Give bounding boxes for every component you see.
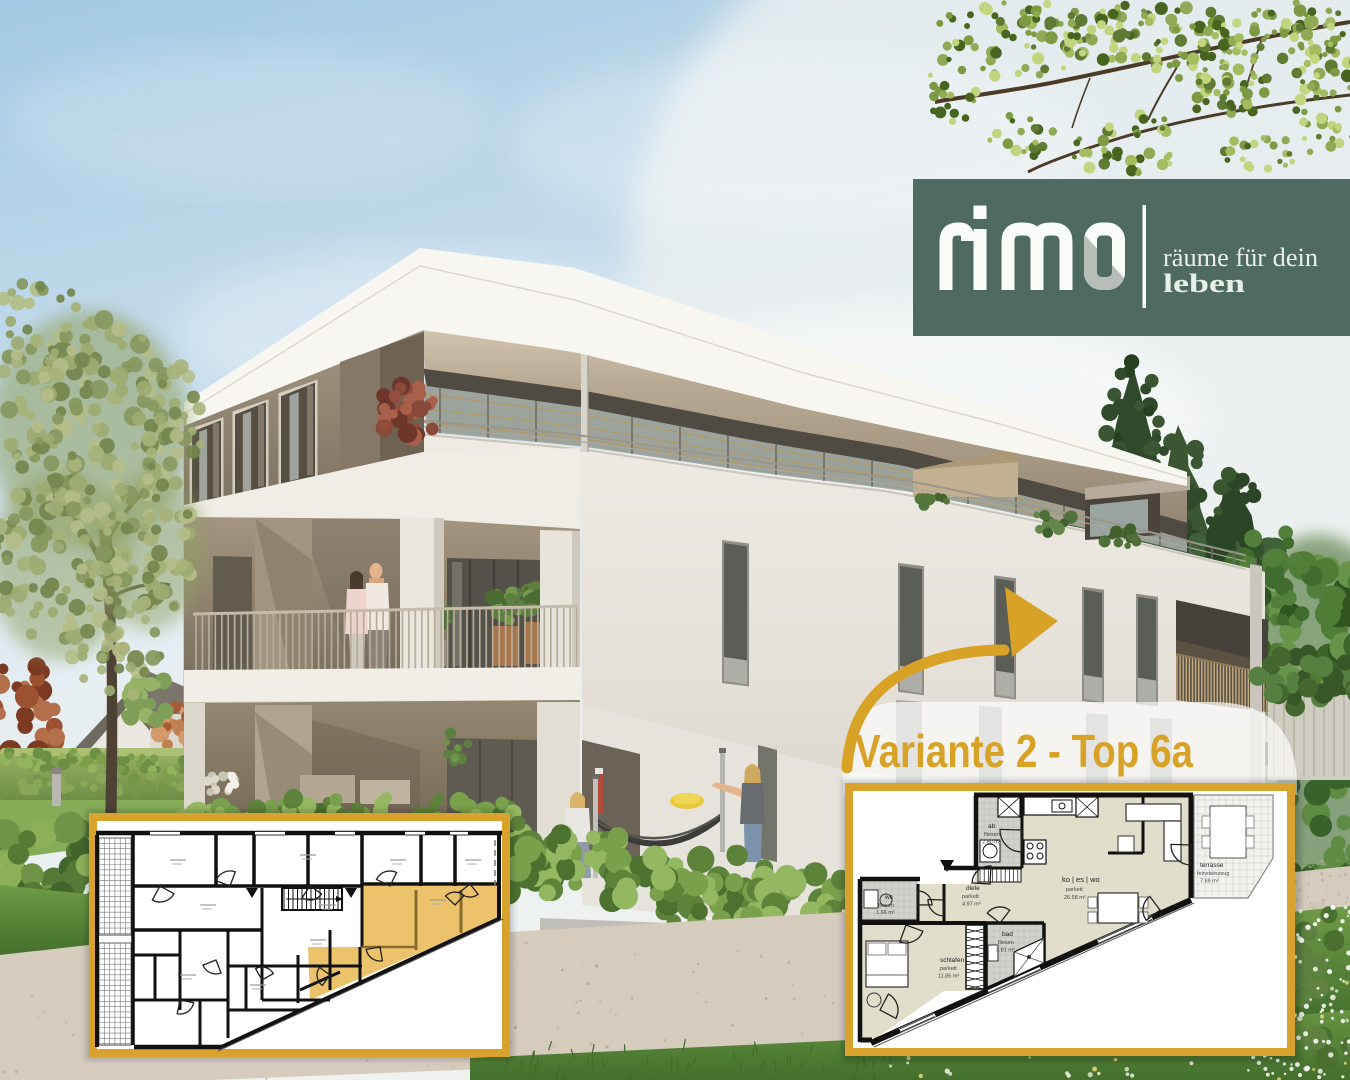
svg-text:3.81 m²: 3.81 m²	[996, 948, 1015, 954]
svg-text:räume für dein: räume für dein	[1163, 243, 1318, 272]
svg-text:parkett: parkett	[1066, 887, 1083, 893]
svg-text:Variante 2 - Top 6a: Variante 2 - Top 6a	[855, 725, 1193, 777]
svg-text:parkett: parkett	[940, 966, 957, 972]
svg-text:parkett: parkett	[962, 894, 979, 900]
svg-text:ab: ab	[988, 823, 996, 830]
svg-text:11.85 m²: 11.85 m²	[938, 974, 959, 980]
svg-text:1.66 m²: 1.66 m²	[876, 910, 895, 916]
svg-text:2.80 m²: 2.80 m²	[982, 840, 1001, 846]
svg-text:leben: leben	[1163, 269, 1246, 298]
svg-text:ko | es | wo: ko | es | wo	[1062, 875, 1100, 884]
svg-text:7.69 m²: 7.69 m²	[1200, 879, 1219, 885]
svg-text:bad: bad	[1002, 931, 1013, 938]
svg-text:feinsteinzeug: feinsteinzeug	[1197, 871, 1229, 877]
svg-text:schlafen: schlafen	[940, 957, 965, 964]
svg-text:wc: wc	[884, 894, 894, 901]
svg-text:diele: diele	[966, 885, 980, 892]
svg-text:terrasse: terrasse	[1200, 862, 1224, 869]
svg-text:fliesen: fliesen	[998, 940, 1014, 946]
svg-text:fliesen: fliesen	[878, 903, 894, 909]
svg-text:fliesen: fliesen	[984, 832, 1000, 838]
svg-text:4.97 m²: 4.97 m²	[962, 902, 981, 908]
svg-text:26.58 m²: 26.58 m²	[1064, 895, 1086, 901]
